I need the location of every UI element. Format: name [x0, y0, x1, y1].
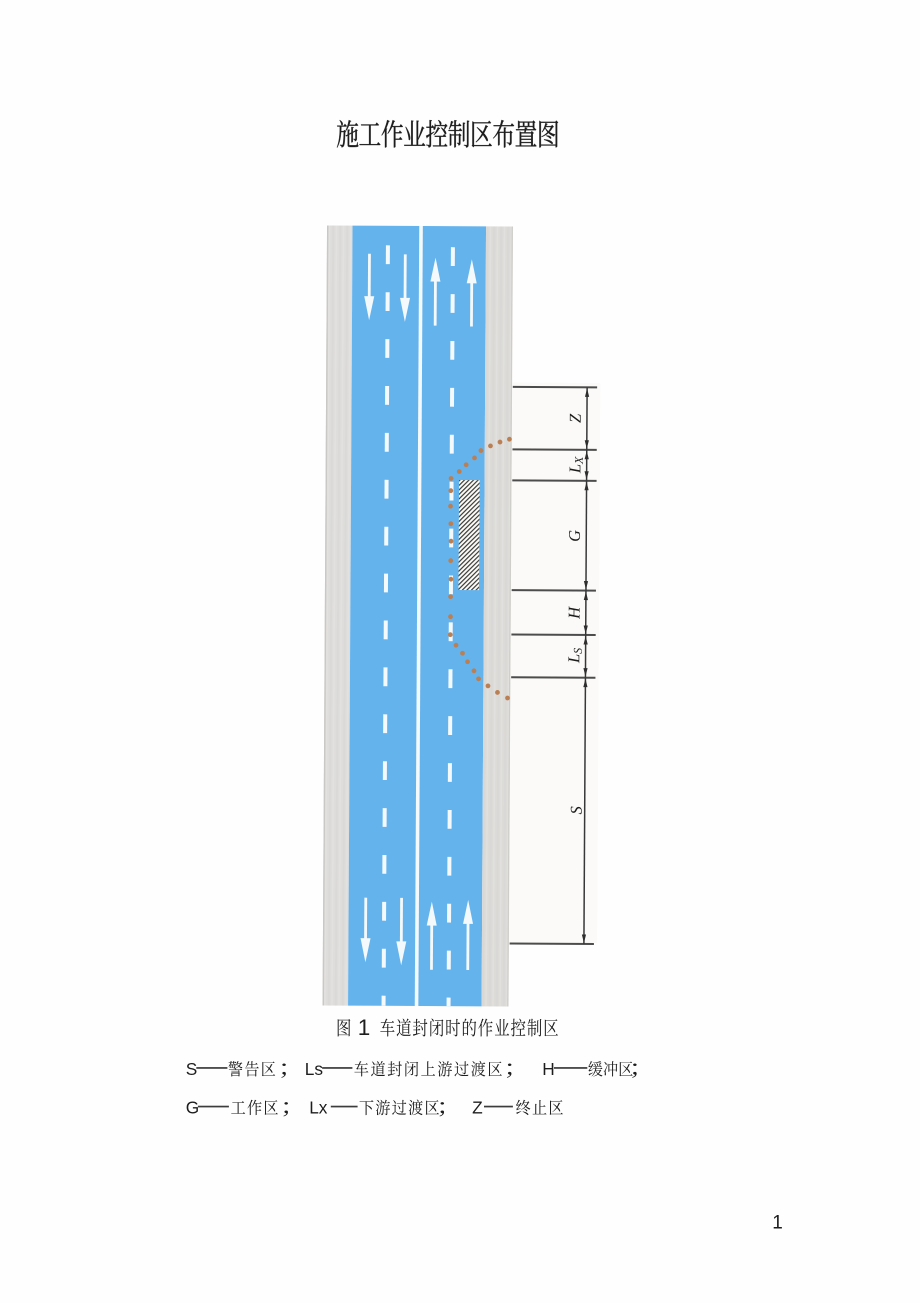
- svg-text:S: S: [186, 1059, 198, 1079]
- svg-text:G: G: [186, 1097, 199, 1117]
- svg-text:H: H: [564, 606, 583, 620]
- svg-text:1: 1: [772, 1212, 783, 1233]
- svg-text:1: 1: [358, 1015, 371, 1040]
- svg-text:H: H: [542, 1059, 554, 1079]
- svg-text:Z: Z: [472, 1097, 483, 1117]
- svg-text:Lx: Lx: [309, 1097, 328, 1117]
- svg-text:G: G: [565, 530, 584, 542]
- svg-text:S: S: [567, 806, 586, 814]
- svg-text:Ls: Ls: [305, 1059, 324, 1079]
- svg-text:Z: Z: [566, 413, 585, 423]
